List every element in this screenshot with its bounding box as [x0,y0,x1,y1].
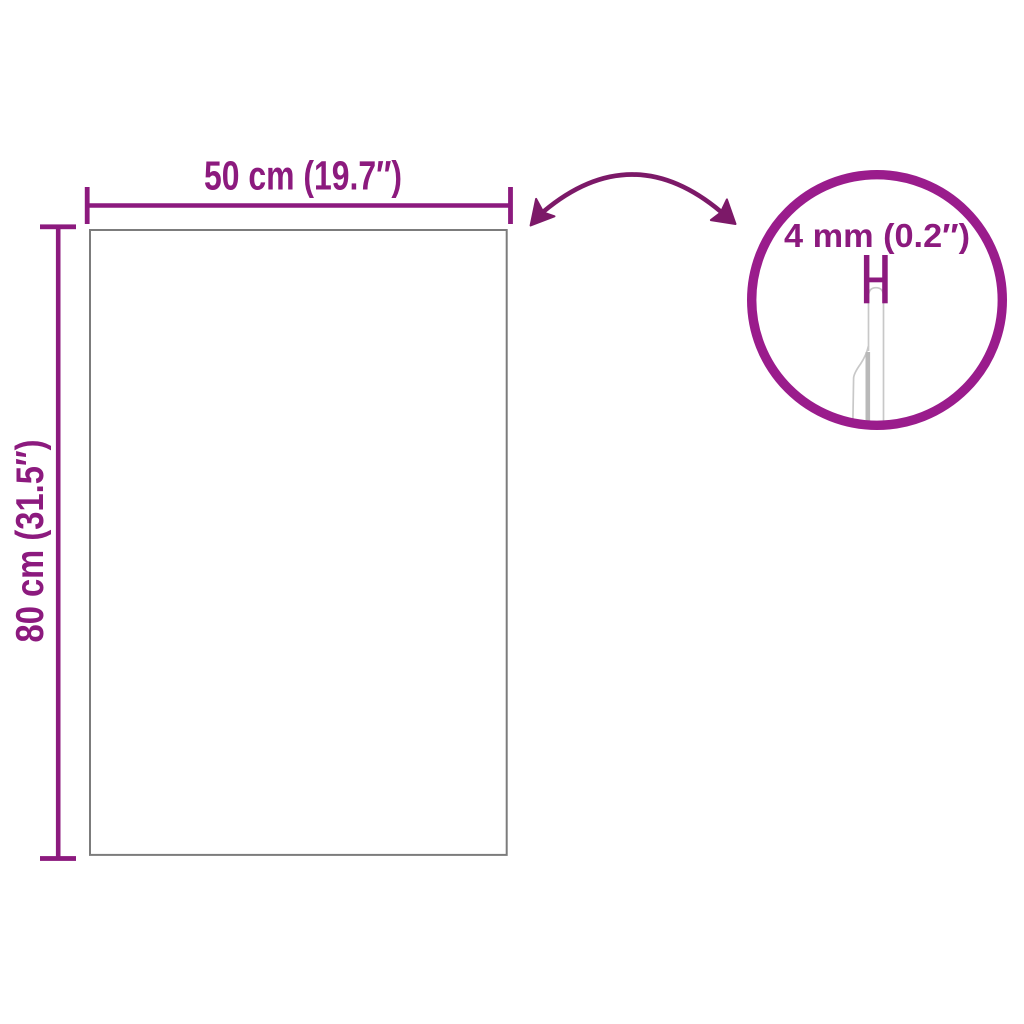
svg-text:80 cm (31.5″): 80 cm (31.5″) [9,440,52,643]
svg-text:4 mm (0.2″): 4 mm (0.2″) [784,217,970,254]
svg-text:50 cm (19.7″): 50 cm (19.7″) [204,153,402,199]
